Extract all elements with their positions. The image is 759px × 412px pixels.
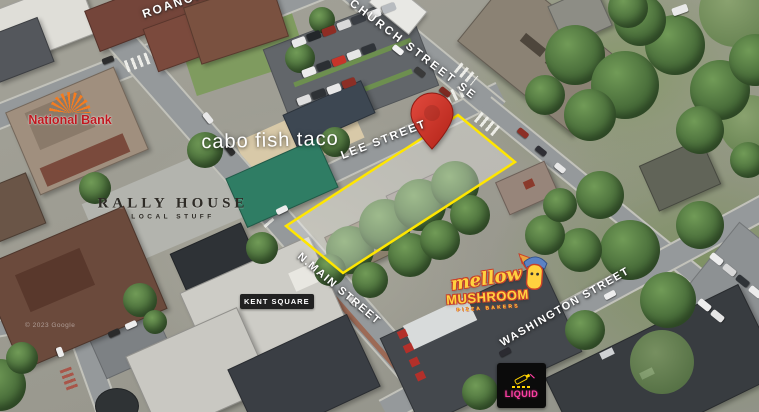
liquid-label: LIQUID (505, 389, 539, 399)
national-bank-logo: National Bank (22, 92, 118, 127)
mellow-mushroom-logo: mellow MUSHROOM PIZZA BAKERS (436, 265, 539, 315)
rally-house-logo: RALLY HOUSE LOCAL STUFF (98, 196, 249, 221)
cabo-fish-taco-label: cabo fish taco (201, 128, 339, 155)
liquid-tagline-dashes (512, 386, 532, 388)
sunburst-icon (49, 92, 91, 113)
pouring-bottle-icon (509, 372, 535, 385)
liquid-logo: LIQUID (497, 363, 546, 408)
aerial-map: ROANOKE ST CHURCH STREET SE LEE STREET N… (0, 0, 759, 412)
national-bank-label: National Bank (22, 114, 118, 127)
kent-square-badge: KENT SQUARE (240, 294, 314, 309)
rally-house-tagline: LOCAL STUFF (98, 214, 249, 221)
rally-house-label: RALLY HOUSE (98, 196, 249, 213)
